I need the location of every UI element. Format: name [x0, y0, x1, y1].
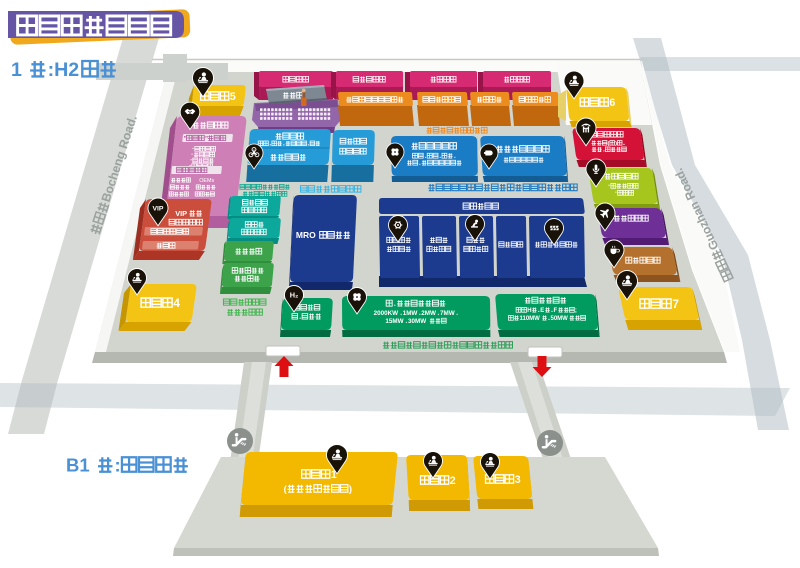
svg-text:B1: B1	[66, 455, 90, 476]
svg-text::: :	[115, 455, 121, 476]
svg-text:7MW: 7MW	[440, 310, 455, 317]
svg-text:(: (	[608, 141, 610, 147]
svg-text:7: 7	[672, 297, 679, 311]
svg-text:H: H	[527, 308, 531, 314]
svg-text:": "	[205, 136, 208, 143]
svg-text:VIP: VIP	[175, 209, 187, 218]
svg-text:30MW: 30MW	[408, 318, 426, 325]
svg-text:;: ;	[575, 308, 577, 314]
svg-text:1: 1	[11, 59, 22, 81]
svg-text:6: 6	[609, 97, 615, 109]
svg-text:15MW: 15MW	[385, 318, 403, 325]
svg-text:2000KW: 2000KW	[374, 310, 399, 317]
svg-text:H₂: H₂	[290, 290, 299, 299]
svg-text:1MW: 1MW	[403, 310, 418, 317]
svg-text:3: 3	[515, 474, 521, 486]
svg-text:50MW: 50MW	[551, 316, 569, 322]
svg-text:MRO: MRO	[296, 230, 316, 240]
svg-text:4: 4	[173, 296, 180, 310]
svg-text:F: F	[554, 308, 558, 314]
svg-text:VIP: VIP	[153, 205, 164, 212]
svg-text:OEMs: OEMs	[199, 178, 214, 184]
svg-text:5: 5	[230, 91, 236, 103]
svg-text:E: E	[540, 308, 544, 314]
svg-text::H2: :H2	[48, 59, 80, 81]
svg-text:2MW: 2MW	[421, 310, 436, 317]
svg-text:): )	[349, 484, 352, 495]
svg-text:110MW: 110MW	[520, 316, 541, 322]
svg-text:2: 2	[450, 475, 456, 487]
svg-text:): )	[615, 141, 617, 147]
